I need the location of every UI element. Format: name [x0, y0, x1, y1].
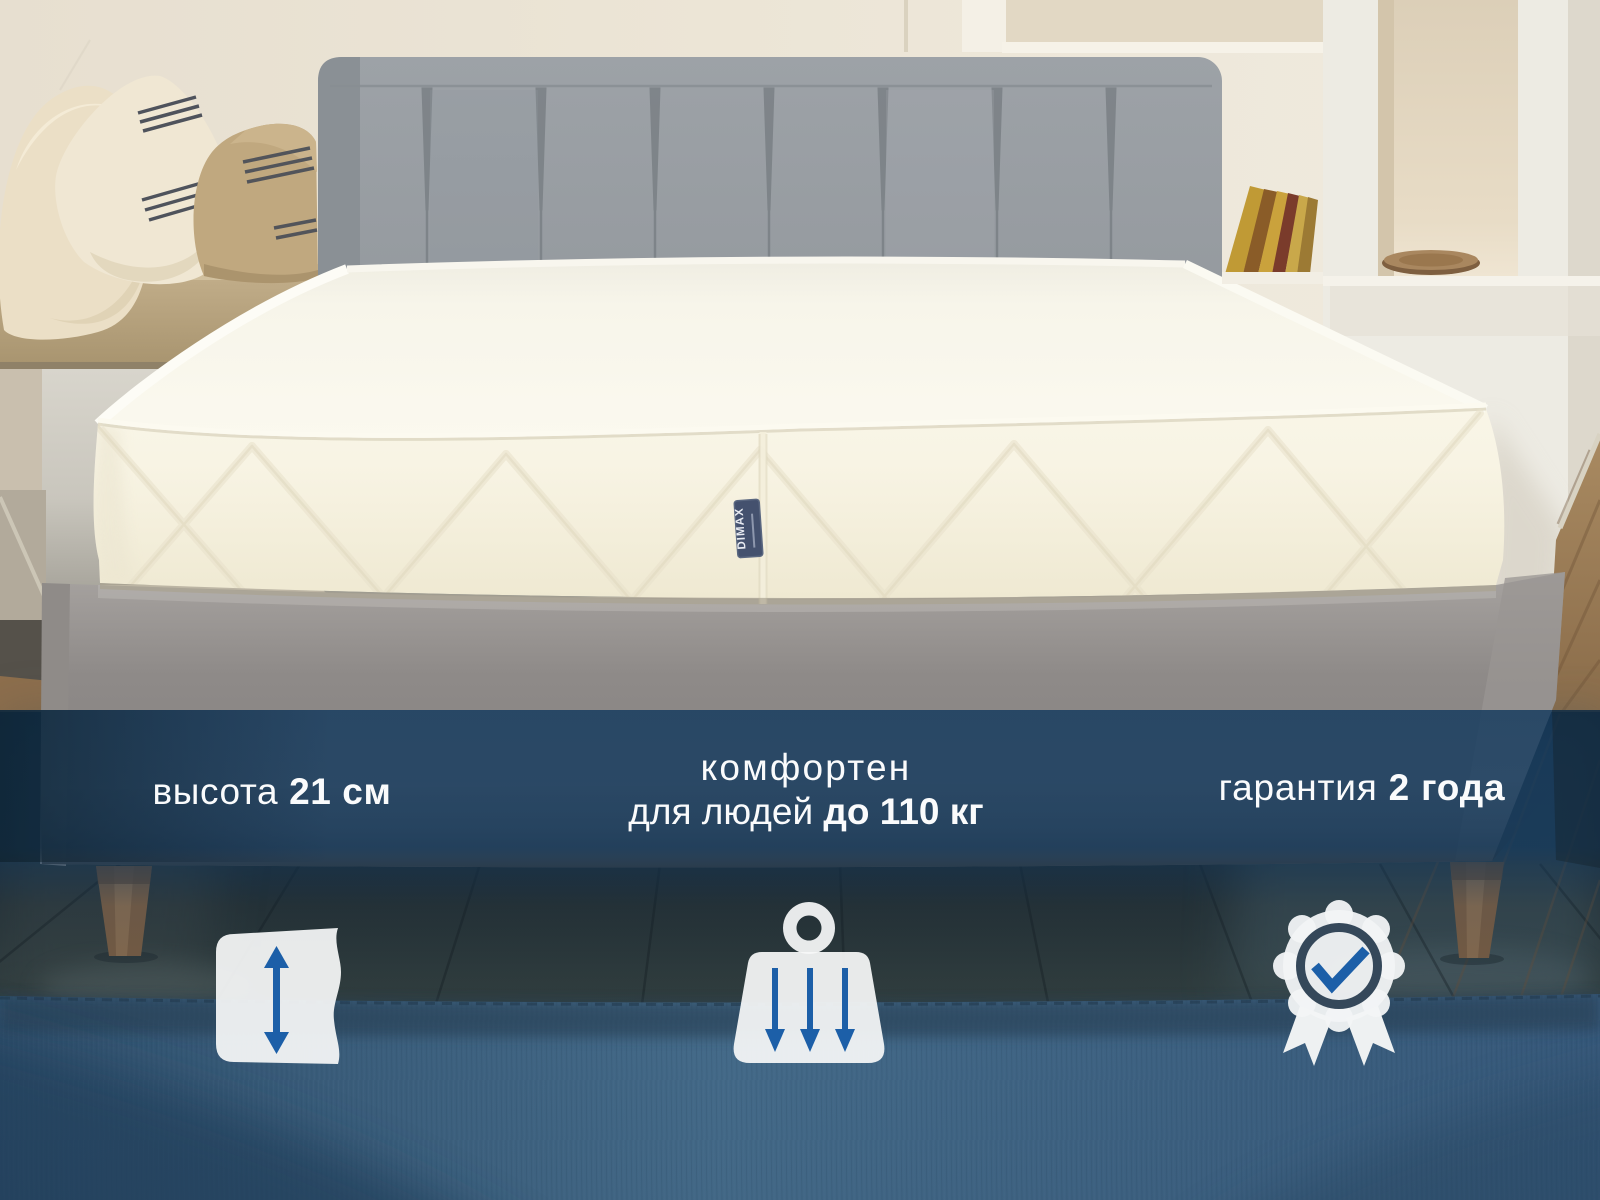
svg-text:для людей до 110 кг: для людей до 110 кг	[628, 791, 983, 832]
svg-text:комфортен: комфортен	[701, 747, 912, 788]
svg-text:высота 21 см: высота 21 см	[153, 771, 392, 812]
svg-text:гарантия 2 года: гарантия 2 года	[1219, 767, 1506, 808]
